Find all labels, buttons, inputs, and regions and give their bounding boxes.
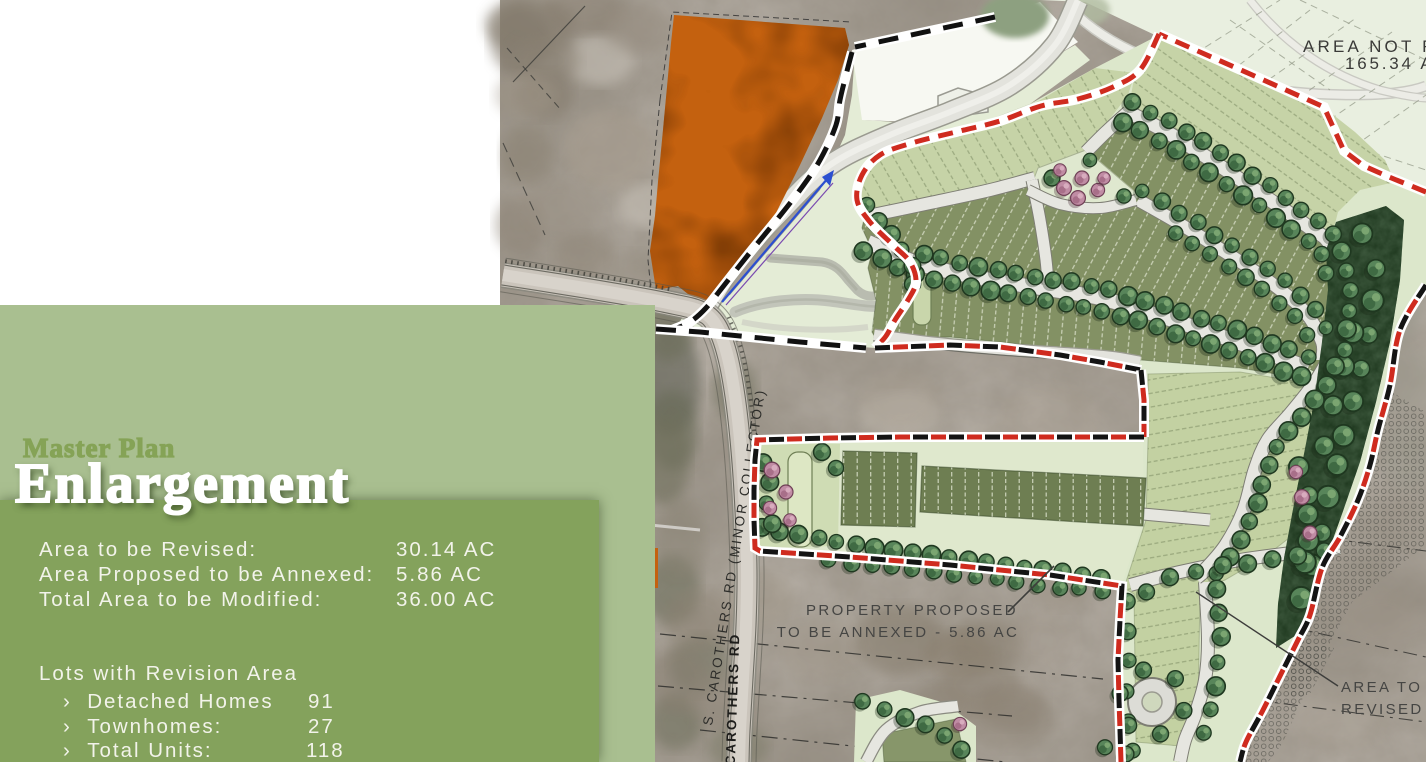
svg-text:AREA TO BE: AREA TO BE (1341, 679, 1426, 696)
svg-text:TO BE ANNEXED - 5.86 AC: TO BE ANNEXED - 5.86 AC (777, 624, 1020, 641)
svg-text:165.34 AC: 165.34 AC (1345, 54, 1426, 73)
svg-text:PROPERTY PROPOSED: PROPERTY PROPOSED (806, 602, 1018, 619)
svg-text:REVISED -: REVISED - (1341, 701, 1426, 718)
